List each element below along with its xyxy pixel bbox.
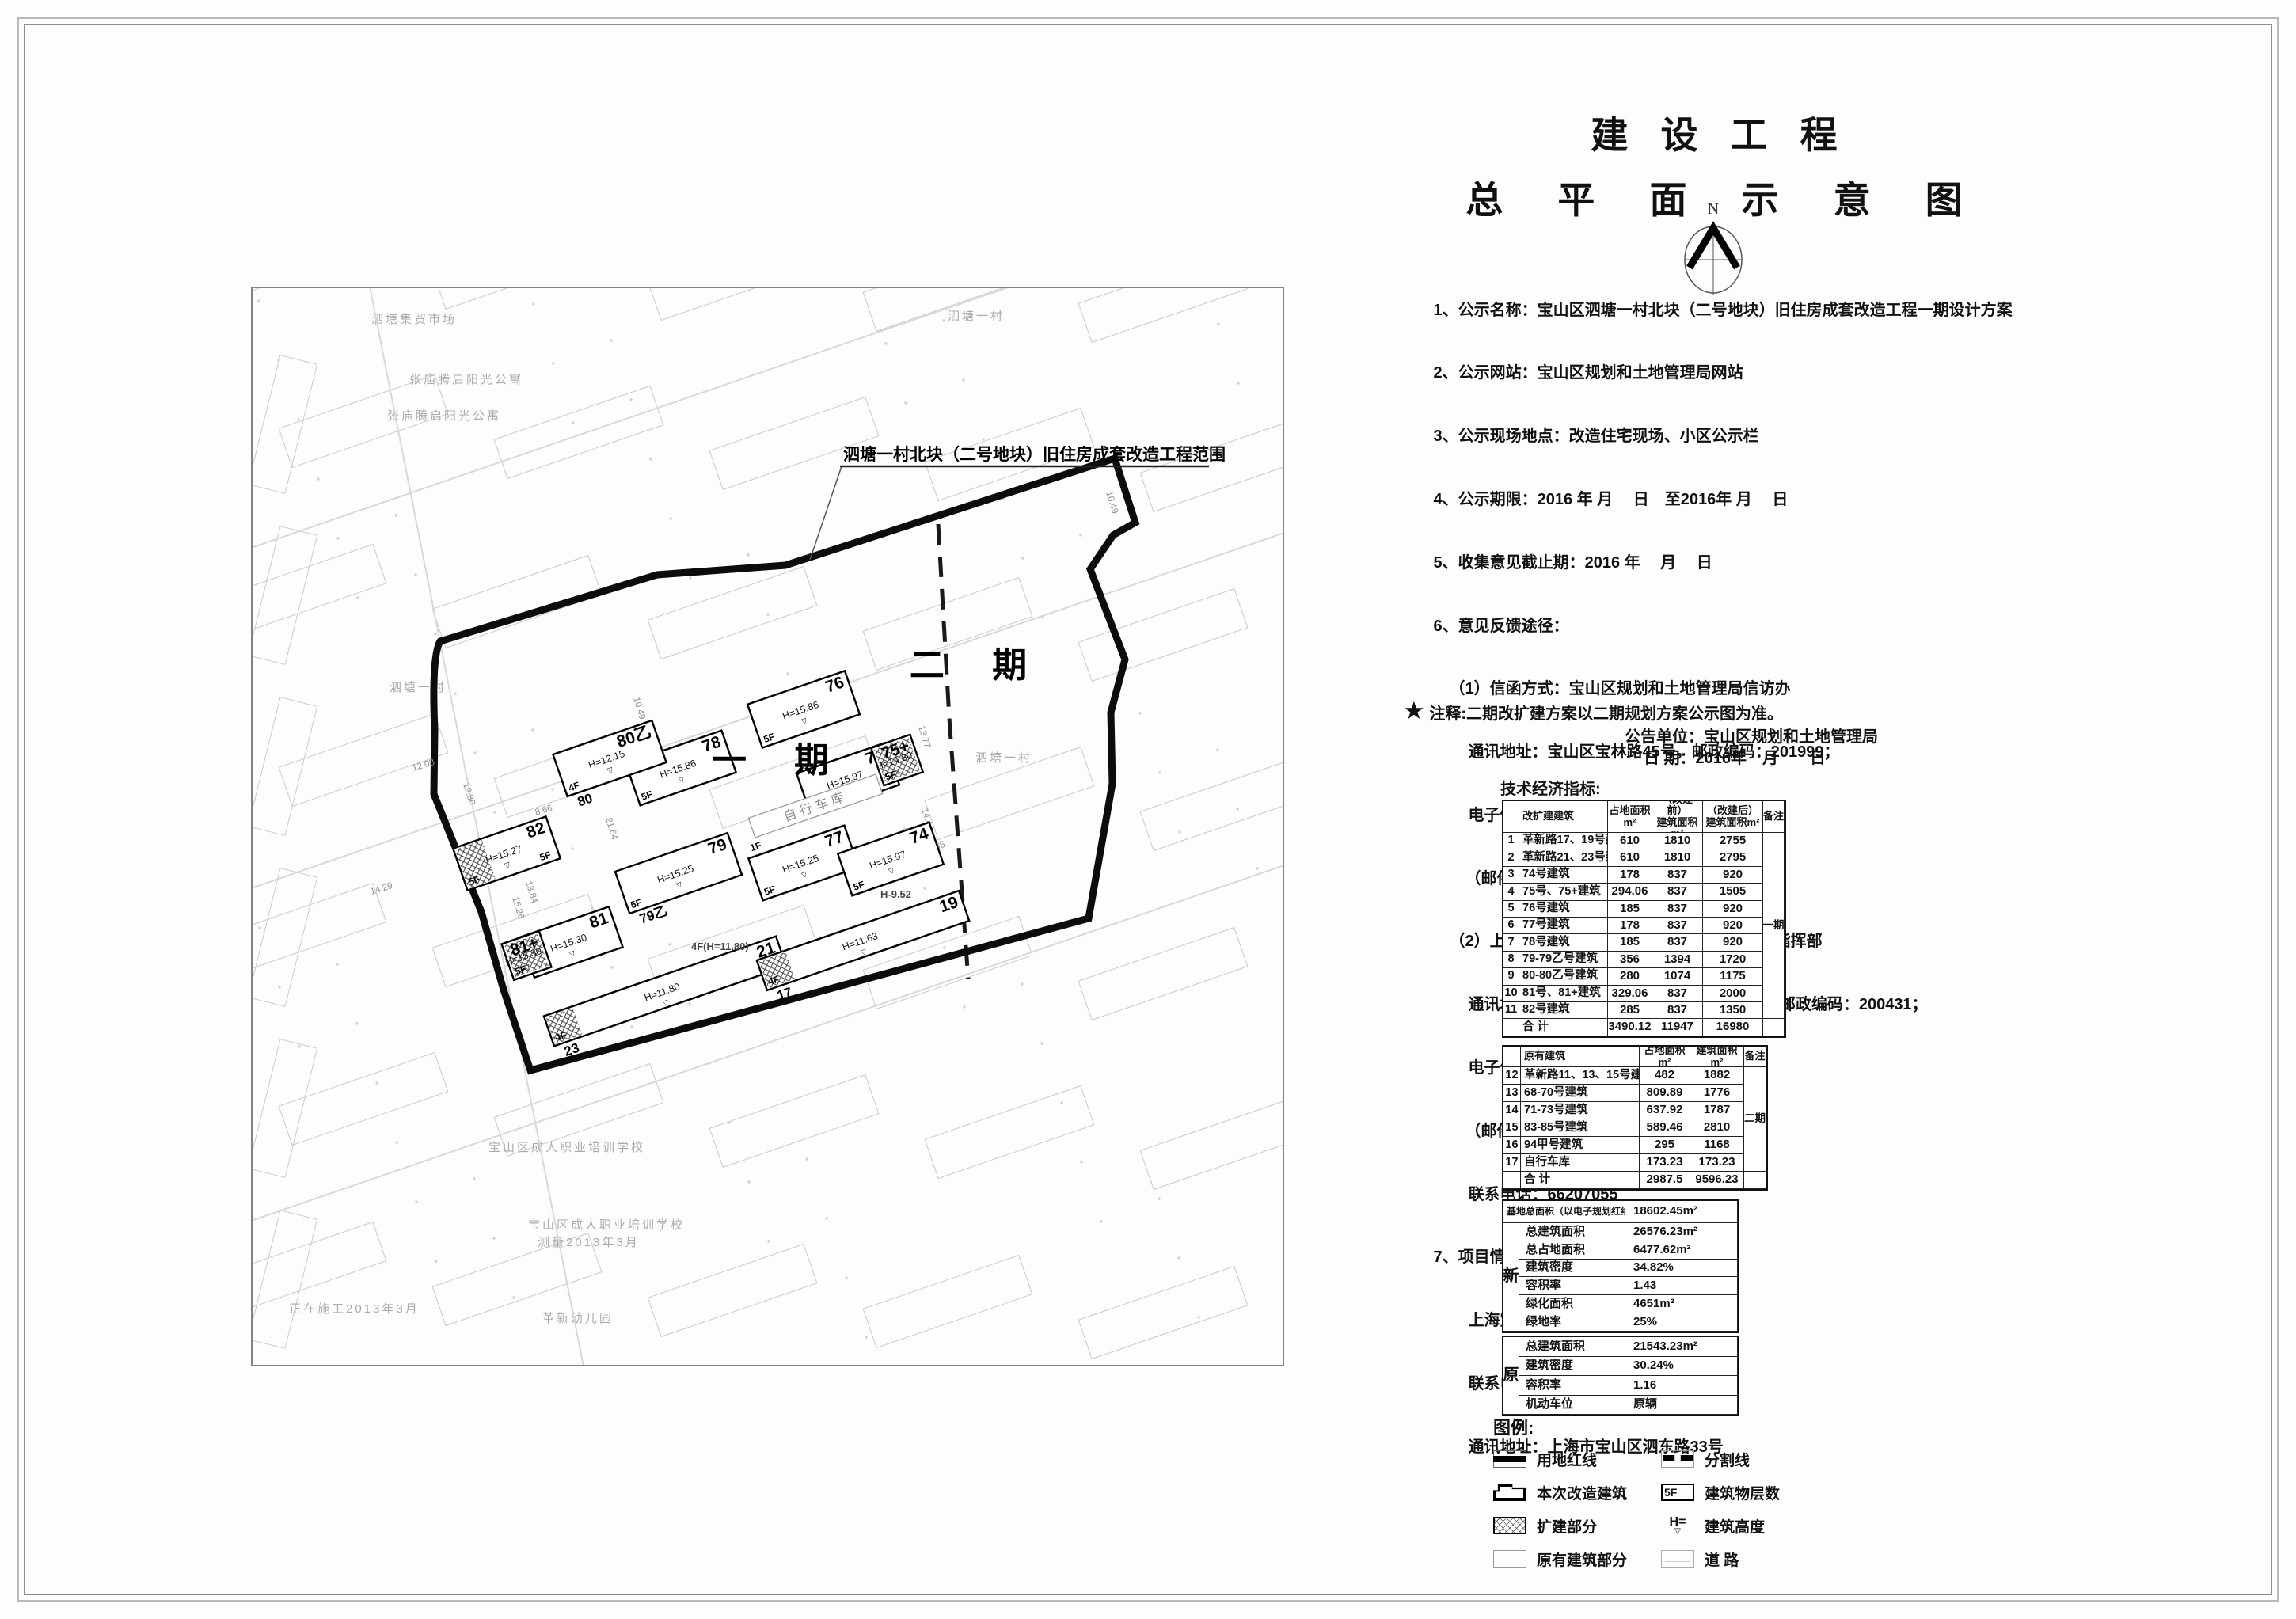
indicator-value: 21543.23m² <box>1625 1337 1738 1357</box>
scope-pointer-label: 泗塘一村北块（二号地块）旧住房成套改造工程范围 <box>843 445 1226 464</box>
building-name: 82号建筑 <box>1519 1002 1608 1019</box>
indicator-value: 25% <box>1625 1313 1738 1332</box>
svg-text:19.80: 19.80 <box>461 781 477 806</box>
row-index: 12 <box>1503 1067 1521 1085</box>
legend-item: 用地红线 <box>1493 1442 1661 1476</box>
land-area: 295 <box>1640 1137 1690 1154</box>
total-row-blank <box>1503 1019 1519 1036</box>
legend-label: 分割线 <box>1705 1449 1750 1470</box>
site-area-value: 18602.45m² <box>1625 1201 1738 1223</box>
road-line <box>251 865 1284 1221</box>
indicator-label: 总建筑面积 <box>1519 1337 1625 1357</box>
floor-area: 2810 <box>1690 1119 1744 1137</box>
legend-item: H= 建筑高度 <box>1661 1509 1899 1542</box>
svg-text:10.49: 10.49 <box>631 696 647 720</box>
map-buildings-layer: 12.0814.2919.808.6615.2613.8421.6411.941… <box>369 490 1119 1062</box>
table-existing-buildings: 原有建筑 占地面积m² 建筑面积m² 备注 二期 12 革新路11、13、15号… <box>1502 1045 1768 1191</box>
total-area-before: 11947 <box>1652 1019 1703 1036</box>
building-name: 革新路17、19号建筑 <box>1519 833 1608 849</box>
land-area: 285 <box>1608 1002 1652 1019</box>
legend-swatch-icon: 5F <box>1661 1484 1694 1501</box>
building-name: 革新路11、13、15号建筑 <box>1521 1067 1640 1085</box>
svg-text:张庙腾启阳光公寓: 张庙腾启阳光公寓 <box>409 372 523 386</box>
area-after: 1350 <box>1703 1002 1763 1019</box>
info-line: 2、公示网站：宝山区规划和土地管理局网站 <box>1398 342 2095 405</box>
svg-text:二 期: 二 期 <box>910 646 1046 685</box>
floor-area: 1776 <box>1690 1085 1744 1102</box>
indicator-label: 容积率 <box>1519 1277 1625 1295</box>
land-area: 482 <box>1640 1067 1690 1085</box>
col-header: 占地面积m² <box>1608 801 1652 833</box>
row-index: 9 <box>1503 968 1519 985</box>
land-area: 280 <box>1608 968 1652 985</box>
col-header: （改建前） 建筑面积m² <box>1652 801 1703 833</box>
row-index: 10 <box>1503 986 1519 1002</box>
indicator-label: 容积率 <box>1519 1376 1625 1396</box>
row-index: 6 <box>1503 918 1519 934</box>
area-before: 837 <box>1652 1002 1703 1019</box>
building-name: 77号建筑 <box>1519 918 1608 934</box>
land-area: 589.46 <box>1640 1119 1690 1137</box>
svg-text:8.66: 8.66 <box>534 804 553 818</box>
svg-text:H-9.52: H-9.52 <box>880 888 911 900</box>
building-name: 78号建筑 <box>1519 934 1608 951</box>
svg-text:13.77: 13.77 <box>916 724 932 749</box>
svg-text:15.26: 15.26 <box>510 895 526 920</box>
row-index: 16 <box>1503 1137 1521 1154</box>
land-area: 610 <box>1608 849 1652 866</box>
tech-indicators-title: 技术经济指标: <box>1500 776 1601 799</box>
legend-label: 用地红线 <box>1537 1449 1597 1470</box>
north-label: N <box>1708 200 1719 218</box>
col-header: 建筑面积m² <box>1690 1047 1744 1067</box>
legend-item: 分割线 <box>1661 1442 1899 1476</box>
indicator-value: 6477.62m² <box>1625 1241 1738 1260</box>
legend-swatch-icon <box>1493 1550 1526 1568</box>
doc-title-line1: 建 设 工 程 <box>1397 105 2031 159</box>
area-before: 837 <box>1652 918 1703 934</box>
svg-text:13.84: 13.84 <box>523 880 539 905</box>
svg-text:泗塘一村: 泗塘一村 <box>948 310 1005 323</box>
svg-text:泗塘集贸市场: 泗塘集贸市场 <box>371 313 457 326</box>
land-area: 178 <box>1608 867 1652 884</box>
total-label: 合 计 <box>1521 1172 1640 1189</box>
area-after: 920 <box>1703 918 1763 934</box>
col-header: 备注 <box>1763 801 1785 833</box>
legend-swatch-icon <box>1493 1450 1526 1468</box>
row-index: 4 <box>1503 884 1519 900</box>
indicator-label: 总建筑面积 <box>1519 1223 1625 1241</box>
indicator-label: 建筑密度 <box>1519 1357 1625 1377</box>
land-area: 173.23 <box>1640 1154 1690 1172</box>
building-name: 革新路21、23号建筑 <box>1519 849 1608 866</box>
area-before: 1810 <box>1652 833 1703 849</box>
total-land-area: 2987.5 <box>1640 1172 1690 1189</box>
svg-text:10.49: 10.49 <box>1104 490 1119 515</box>
row-index: 7 <box>1503 934 1519 951</box>
info-line-text: （1）信函方式：宝山区规划和土地管理局信访办 <box>1449 680 1790 697</box>
total-area-after: 16980 <box>1703 1019 1763 1036</box>
building-name: 76号建筑 <box>1519 901 1608 918</box>
info-line-text: 4、公示期限：2016 年 月 日 至2016年 月 日 <box>1433 491 1788 508</box>
area-after: 2795 <box>1703 849 1763 866</box>
info-line: 6、意见反馈途径： <box>1398 595 2095 658</box>
area-after: 1505 <box>1703 884 1763 900</box>
legend-swatch-icon <box>1661 1450 1694 1468</box>
area-before: 837 <box>1652 884 1703 900</box>
row-index: 17 <box>1503 1154 1521 1172</box>
svg-text:宝山区成人职业培训学校: 宝山区成人职业培训学校 <box>488 1141 645 1154</box>
col-header <box>1503 801 1519 833</box>
legend-label: 原有建筑部分 <box>1537 1549 1627 1570</box>
row-index: 15 <box>1503 1119 1521 1137</box>
svg-text:泗塘一村: 泗塘一村 <box>390 681 447 694</box>
row-index: 3 <box>1503 867 1519 884</box>
area-before: 837 <box>1652 986 1703 1002</box>
notice-issuer-line: 公告单位：宝山区规划和土地管理局 <box>1625 727 1878 748</box>
phase2-remark-cell: 二期 <box>1744 1067 1766 1172</box>
total-row-blank <box>1744 1172 1766 1189</box>
indicator-label: 绿地率 <box>1519 1313 1625 1332</box>
indicator-label: 绿化面积 <box>1519 1295 1625 1313</box>
floor-area: 1787 <box>1690 1102 1744 1119</box>
building-name: 自行车库 <box>1521 1154 1640 1172</box>
land-area: 610 <box>1608 833 1652 849</box>
building-name: 80-80乙号建筑 <box>1519 968 1608 985</box>
legend-label: 扩建部分 <box>1537 1515 1597 1537</box>
info-line-text: 5、收集意见截止期：2016 年 月 日 <box>1433 554 1712 572</box>
col-header: 备注 <box>1744 1047 1766 1067</box>
land-area: 294.06 <box>1608 884 1652 900</box>
row-index: 13 <box>1503 1085 1521 1102</box>
legend-swatch-icon: H= <box>1661 1517 1694 1534</box>
table-new-indicators: 基地总面积（以电子规划红线线为准） 18602.45m² 新 总建筑面积 265… <box>1502 1199 1739 1333</box>
area-after: 1720 <box>1703 952 1763 968</box>
land-area: 809.89 <box>1640 1085 1690 1102</box>
total-land-area: 3490.12 <box>1608 1019 1652 1036</box>
group-label-new: 新 <box>1503 1223 1519 1332</box>
svg-text:一 期: 一 期 <box>712 741 848 780</box>
area-before: 1810 <box>1652 849 1703 866</box>
total-row-blank <box>1503 1172 1521 1189</box>
indicator-value: 26576.23m² <box>1625 1223 1738 1241</box>
row-index: 2 <box>1503 849 1519 866</box>
row-index: 14 <box>1503 1102 1521 1119</box>
indicator-value: 4651m² <box>1625 1295 1738 1313</box>
site-area-label: 基地总面积（以电子规划红线线为准） <box>1503 1201 1625 1223</box>
land-area: 329.06 <box>1608 986 1652 1002</box>
legend-item: 5F 建筑物层数 <box>1661 1476 1899 1509</box>
info-line-text: 1、公示名称：宝山区泗塘一村北块（二号地块）旧住房成套改造工程一期设计方案 <box>1433 302 2012 319</box>
legend-swatch-text: 5F <box>1663 1486 1677 1499</box>
floor-area: 173.23 <box>1690 1154 1744 1172</box>
row-index: 11 <box>1503 1002 1519 1019</box>
info-line: 3、公示现场地点：改造住宅现场、小区公示栏 <box>1398 405 2095 469</box>
area-before: 837 <box>1652 901 1703 918</box>
area-after: 2755 <box>1703 833 1763 849</box>
land-area: 185 <box>1608 901 1652 918</box>
area-before: 1074 <box>1652 968 1703 985</box>
indicator-value: 1.43 <box>1625 1277 1738 1295</box>
row-index: 8 <box>1503 952 1519 968</box>
area-before: 837 <box>1652 867 1703 884</box>
indicator-value: 原辆 <box>1625 1396 1738 1416</box>
land-area: 356 <box>1608 952 1652 968</box>
table-original-indicators: 原 总建筑面积 21543.23m² 建筑密度 30.24% 容积率 <box>1502 1336 1739 1416</box>
svg-text:宝山区成人职业培训学校: 宝山区成人职业培训学校 <box>528 1218 685 1232</box>
area-before: 1394 <box>1652 952 1703 968</box>
legend-title: 图例: <box>1493 1414 1534 1439</box>
indicator-value: 30.24% <box>1625 1357 1738 1377</box>
area-after: 920 <box>1703 934 1763 951</box>
building-name: 75号、75+建筑 <box>1519 884 1608 900</box>
legend: 用地红线 分割线 本次改造建筑 5F 建筑物层数 <box>1493 1442 1899 1575</box>
phase1-remark-cell: 一期 <box>1763 833 1785 1019</box>
svg-text:张庙腾启阳光公寓: 张庙腾启阳光公寓 <box>387 409 501 423</box>
total-label: 合 计 <box>1519 1019 1608 1036</box>
building-name: 81号、81+建筑 <box>1519 986 1608 1002</box>
indicator-label: 建筑密度 <box>1519 1260 1625 1278</box>
info-line-text: 6、意见反馈途径： <box>1433 618 1568 635</box>
info-line-text: 2、公示网站：宝山区规划和土地管理局网站 <box>1433 364 1743 382</box>
road-line <box>370 287 584 1366</box>
legend-label: 建筑高度 <box>1705 1515 1765 1537</box>
row-index: 1 <box>1503 833 1519 849</box>
legend-label: 建筑物层数 <box>1705 1482 1780 1503</box>
legend-item: 道 路 <box>1661 1542 1899 1575</box>
legend-item: 扩建部分 <box>1493 1509 1661 1542</box>
legend-swatch-icon <box>1493 1484 1526 1501</box>
svg-text:泗塘一村: 泗塘一村 <box>975 751 1032 765</box>
info-line: 4、公示期限：2016 年 月 日 至2016年 月 日 <box>1398 468 2095 531</box>
area-after: 920 <box>1703 901 1763 918</box>
area-after: 1175 <box>1703 968 1763 985</box>
land-area: 178 <box>1608 918 1652 934</box>
building-name: 68-70号建筑 <box>1521 1085 1640 1102</box>
notice-date-line: 日 期：2016年 月 日 <box>1625 748 1878 770</box>
indicator-value: 34.82% <box>1625 1260 1738 1278</box>
land-area: 185 <box>1608 934 1652 951</box>
svg-text:1F: 1F <box>749 839 763 853</box>
svg-text:21.64: 21.64 <box>603 816 619 842</box>
indicator-value: 1.16 <box>1625 1376 1738 1396</box>
notice-issuer: 公告单位：宝山区规划和土地管理局 日 期：2016年 月 日 <box>1625 727 1878 770</box>
floor-area: 1168 <box>1690 1137 1744 1154</box>
total-floor-area: 9596.23 <box>1690 1172 1744 1189</box>
legend-item: 本次改造建筑 <box>1493 1476 1661 1509</box>
area-after: 920 <box>1703 867 1763 884</box>
legend-label: 本次改造建筑 <box>1537 1482 1627 1503</box>
building-name: 79-79乙号建筑 <box>1519 952 1608 968</box>
legend-swatch-icon <box>1661 1550 1694 1568</box>
site-plan-map: 泗塘集贸市场张庙腾启阳光公寓张庙腾启阳光公寓泗塘一村泗塘一村泗塘一村宝山区成人职… <box>251 287 1284 1366</box>
star-note: ★ 注释:二期改扩建方案以二期规划方案公示图为准。 <box>1403 697 1783 725</box>
svg-text:革新幼儿园: 革新幼儿园 <box>542 1312 614 1325</box>
col-header: 改扩建建筑 <box>1519 801 1608 833</box>
legend-swatch-icon <box>1493 1517 1526 1534</box>
table-renovated-buildings: 改扩建建筑 占地面积m² （改建前） 建筑面积m² （改建后） 建筑面积m² 备… <box>1502 800 1786 1038</box>
svg-text:测量2013年3月: 测量2013年3月 <box>538 1236 640 1249</box>
building-name: 74号建筑 <box>1519 867 1608 884</box>
legend-label: 道 路 <box>1705 1549 1739 1570</box>
building-name: 94甲号建筑 <box>1521 1137 1640 1154</box>
col-header: 原有建筑 <box>1521 1047 1640 1067</box>
total-row-blank <box>1763 1019 1785 1036</box>
info-line: 5、收集意见截止期：2016 年 月 日 <box>1398 531 2095 595</box>
area-before: 837 <box>1652 934 1703 951</box>
col-header: 占地面积m² <box>1640 1047 1690 1067</box>
building-name: 83-85号建筑 <box>1521 1119 1640 1137</box>
info-line-text: 3、公示现场地点：改造住宅现场、小区公示栏 <box>1433 428 1758 445</box>
info-line: 1、公示名称：宝山区泗塘一村北块（二号地块）旧住房成套改造工程一期设计方案 <box>1398 279 2095 342</box>
svg-text:正在施工2013年3月: 正在施工2013年3月 <box>289 1302 420 1316</box>
area-after: 2000 <box>1703 986 1763 1002</box>
indicator-label: 总占地面积 <box>1519 1241 1625 1260</box>
building-name: 71-73号建筑 <box>1521 1102 1640 1119</box>
legend-item: 原有建筑部分 <box>1493 1542 1661 1575</box>
svg-text:4F(H=11.80): 4F(H=11.80) <box>691 941 749 952</box>
indicator-label: 机动车位 <box>1519 1396 1625 1416</box>
col-header: （改建后） 建筑面积m² <box>1703 801 1763 833</box>
group-label-original: 原 <box>1503 1337 1519 1415</box>
land-area: 637.92 <box>1640 1102 1690 1119</box>
row-index: 5 <box>1503 901 1519 918</box>
col-header <box>1503 1047 1521 1067</box>
floor-area: 1882 <box>1690 1067 1744 1085</box>
legend-swatch-text: H= <box>1670 1517 1686 1528</box>
